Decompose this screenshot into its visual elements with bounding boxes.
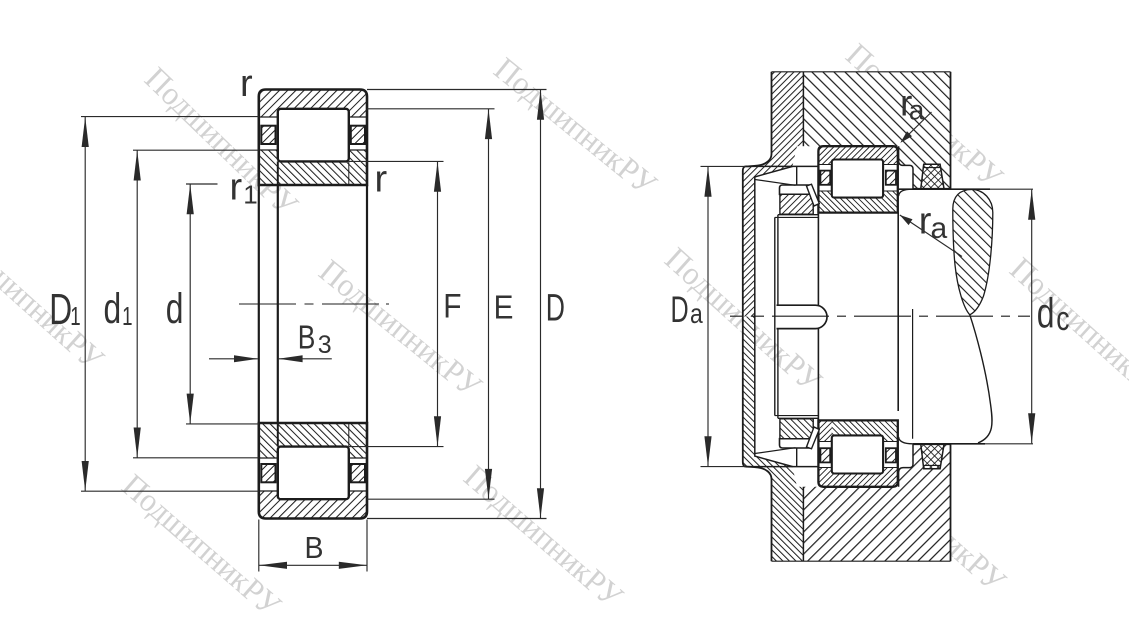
svg-text:D: D — [671, 288, 689, 330]
svg-text:d: d — [166, 285, 184, 333]
svg-text:c: c — [1056, 300, 1069, 338]
svg-text:r: r — [375, 159, 388, 201]
svg-text:r: r — [230, 167, 243, 209]
svg-text:d: d — [1037, 289, 1055, 336]
svg-text:B: B — [298, 320, 316, 356]
svg-text:D: D — [546, 286, 565, 329]
svg-text:a: a — [931, 212, 948, 245]
svg-text:E: E — [494, 289, 514, 326]
svg-text:1: 1 — [122, 301, 132, 331]
svg-text:a: a — [909, 95, 925, 126]
svg-text:d: d — [104, 285, 122, 333]
svg-text:1: 1 — [70, 301, 80, 331]
svg-text:3: 3 — [318, 331, 332, 359]
svg-text:r: r — [240, 63, 253, 105]
svg-text:B: B — [305, 531, 324, 565]
svg-text:D: D — [49, 285, 72, 334]
svg-text:1: 1 — [243, 179, 257, 209]
svg-text:F: F — [443, 287, 461, 325]
svg-text:a: a — [690, 299, 703, 330]
